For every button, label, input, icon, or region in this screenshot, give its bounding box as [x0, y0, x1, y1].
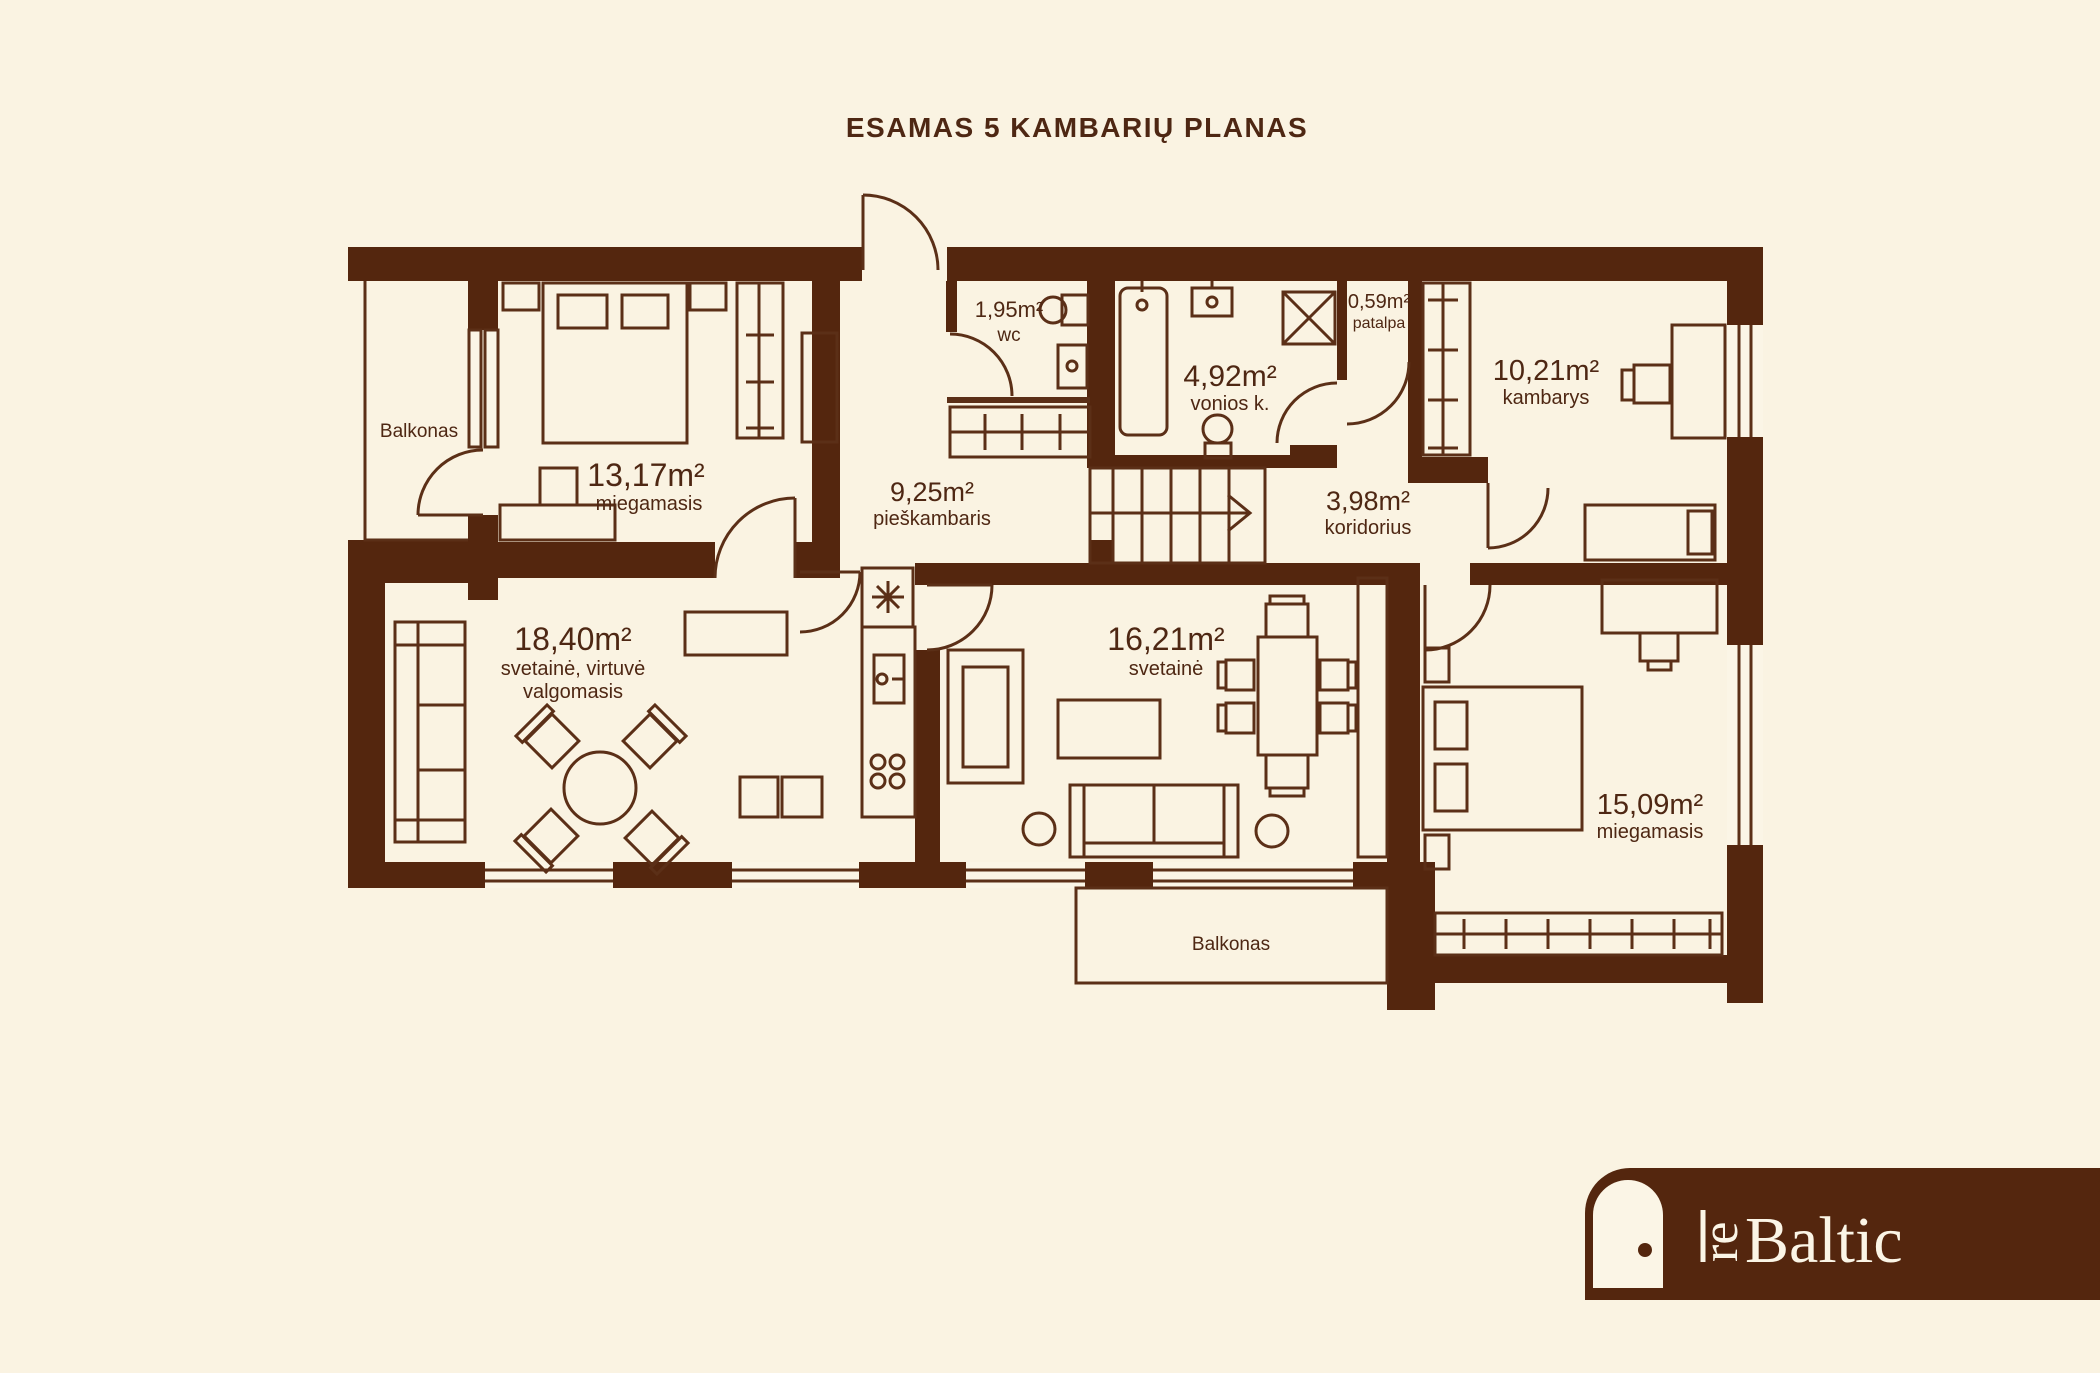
label-vonios-name: vonios k.: [1191, 393, 1270, 415]
label-svetaine18-name2: valgomasis: [523, 681, 623, 703]
single-bed: [1585, 505, 1715, 560]
door-balcony-left: [418, 450, 483, 515]
label-kambarys10-name: kambarys: [1503, 387, 1590, 409]
door-vonios: [1277, 383, 1337, 443]
label-wc-area: 1,95m²: [975, 297, 1043, 322]
sink: [1192, 281, 1232, 316]
wall-bottom-1: [348, 862, 485, 888]
furniture-svetaine16: [948, 578, 1387, 857]
pillow: [1435, 702, 1467, 749]
chair: [621, 705, 686, 770]
label-svetaine18-area: 18,40m²: [514, 621, 632, 657]
label-wc-name: wc: [996, 325, 1020, 346]
window-right-top: [1727, 325, 1763, 437]
wall-stairs-block: [1090, 540, 1112, 565]
label-patalpa-area: 0,59m²: [1348, 291, 1411, 313]
washing-machine: [1283, 292, 1335, 344]
wall-top-right: [947, 247, 1763, 281]
wall-vonios-bottom: [1087, 455, 1303, 468]
label-pieskambaris-area: 9,25m²: [890, 477, 974, 507]
wardrobe: [1423, 283, 1470, 455]
door-svetaine18: [800, 572, 860, 632]
chair: [1218, 660, 1254, 690]
chair: [1320, 660, 1356, 690]
wall-balcony-bottom: [348, 540, 468, 583]
bathtub: [1120, 281, 1167, 435]
room-labels: Balkonas 13,17m² miegamasis 1,95m² wc 4,…: [380, 291, 1704, 955]
dining-table-round: [564, 752, 636, 824]
label-koridorius-name: koridorius: [1325, 517, 1412, 539]
wall-bottom-4: [1085, 862, 1153, 888]
kitchen-base-unit: [782, 777, 822, 817]
kitchen-counter-top: [685, 612, 787, 655]
side-table: [1023, 813, 1055, 845]
chair: [1622, 365, 1670, 403]
wall-bottom-5: [1353, 862, 1387, 888]
chair: [1218, 703, 1254, 733]
wall-kitchen-right: [915, 650, 940, 862]
dining-table: [1258, 637, 1317, 755]
kitchen-sink: [874, 655, 904, 703]
furniture-kambarys10: [1423, 283, 1725, 560]
door-icon: [1593, 1180, 1663, 1288]
logo: re Baltic: [1585, 1168, 2100, 1300]
wall-top-left: [348, 247, 862, 281]
pillow: [622, 295, 668, 328]
pillow: [558, 295, 607, 328]
window-balcony-divider: [469, 330, 498, 447]
wall-kambarys-bottom: [1470, 563, 1763, 585]
chair: [1266, 596, 1308, 637]
nightstand: [503, 283, 539, 310]
kitchen-base-unit: [740, 777, 778, 817]
hall-closet: [950, 407, 1090, 457]
wardrobe: [737, 283, 783, 438]
label-vonios-area: 4,92m²: [1183, 360, 1276, 393]
label-pieskambaris-name: pieškambaris: [873, 508, 991, 530]
nightstand: [690, 283, 726, 310]
window-band-miegamasis15: [1435, 913, 1722, 955]
toilet: [1040, 295, 1088, 325]
double-bed: [543, 283, 687, 443]
logo-name: Baltic: [1745, 1204, 1903, 1277]
label-kambarys10-area: 10,21m²: [1493, 355, 1600, 387]
wall-bottom-2: [613, 862, 732, 888]
chest: [540, 468, 577, 505]
label-svetaine16-area: 16,21m²: [1107, 621, 1225, 657]
furniture-svetaine18: [395, 568, 915, 874]
door-patalpa: [1347, 362, 1409, 424]
armchair: [948, 650, 1023, 783]
wall-koridorius-bottom: [915, 563, 1420, 585]
balcony-left-outline: [365, 281, 468, 540]
plan-title: ESAMAS 5 KAMBARIŲ PLANAS: [846, 112, 1308, 143]
label-balkonas-bottom: Balkonas: [1192, 934, 1270, 955]
label-patalpa-name: patalpa: [1353, 315, 1406, 332]
wall-kambarys-corner: [1408, 457, 1488, 483]
desk: [1672, 325, 1725, 438]
wall-bottom-3: [859, 862, 966, 888]
chair: [1266, 755, 1308, 796]
chair: [1640, 633, 1678, 670]
label-miegamasis13-area: 13,17m²: [587, 457, 705, 493]
wall-patalpa-left: [1337, 281, 1347, 380]
side-table: [1256, 815, 1288, 847]
door-miegamasis15: [1425, 585, 1490, 650]
window-right-bottom: [1727, 645, 1763, 845]
wall-vonios-corner: [1290, 445, 1337, 468]
stove: [871, 755, 904, 788]
shelf: [1358, 578, 1387, 857]
double-bed: [1423, 687, 1582, 830]
coffee-table: [1058, 700, 1160, 758]
wall-bedroom13-bottom: [498, 542, 715, 578]
label-koridorius-area: 3,98m²: [1326, 486, 1410, 516]
sofa: [1070, 785, 1238, 857]
label-svetaine16-name: svetainė: [1129, 658, 1204, 680]
sofa: [395, 622, 465, 842]
wall-wc-left: [946, 281, 957, 332]
wall-divider-top: [468, 281, 498, 330]
nightstand: [1425, 648, 1449, 682]
sink: [1058, 345, 1087, 388]
label-svetaine18-name: svetainė, virtuvė: [501, 658, 646, 680]
chair: [1320, 703, 1356, 733]
boiler: [862, 568, 913, 627]
door-miegamasis13: [715, 498, 795, 578]
pillow: [1435, 764, 1467, 811]
door-kambarys10: [1488, 483, 1548, 548]
toilet: [1203, 415, 1232, 458]
label-balkonas-left: Balkonas: [380, 421, 458, 442]
wall-wing-left: [1387, 862, 1435, 1010]
wall-left: [348, 540, 385, 888]
door-entrance: [863, 195, 938, 270]
stairs: [1090, 468, 1265, 563]
wall-wing-bottom: [1435, 955, 1727, 983]
floor-plan: ESAMAS 5 KAMBARIŲ PLANAS: [0, 0, 2100, 1373]
wall-divider-bottom: [468, 515, 498, 600]
logo-re: re: [1692, 1222, 1749, 1262]
chair: [516, 705, 581, 770]
label-miegamasis13-name: miegamasis: [596, 493, 703, 515]
desk: [1602, 580, 1717, 633]
label-miegamasis15-name: miegamasis: [1597, 821, 1704, 843]
wall-svetaine-miegamasis: [1387, 563, 1420, 862]
door-svetaine16: [927, 585, 992, 650]
label-miegamasis15-area: 15,09m²: [1597, 789, 1704, 821]
